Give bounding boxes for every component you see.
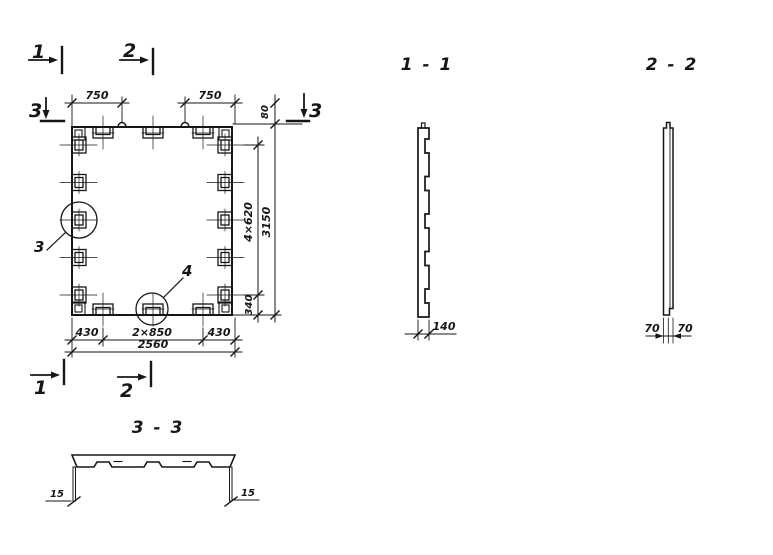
- dim-side-spacing: 4×620: [242, 202, 255, 243]
- dim-thickness: 140: [433, 320, 456, 333]
- arrow-right-icon: [138, 374, 147, 381]
- section-profile: [418, 128, 429, 317]
- dim-left: 70: [644, 322, 660, 335]
- section-marker-label: 2: [120, 380, 133, 402]
- section-marker-1-bottom: 1: [31, 360, 64, 399]
- detail-callout-3: 3: [34, 202, 97, 256]
- section-marker-1-top: 1: [29, 41, 62, 73]
- dim-rib: 15: [241, 488, 255, 499]
- section-marker-label: 1: [34, 377, 47, 399]
- dim-top-right: 750: [199, 89, 222, 102]
- extension-lines: [418, 320, 429, 340]
- arrow-right-icon: [49, 57, 58, 64]
- detail-label: 3: [34, 238, 44, 256]
- section-marker-3-right: 3: [287, 94, 322, 122]
- edge-rib: [73, 467, 76, 501]
- leader-line: [47, 233, 65, 250]
- section-profile: [664, 123, 674, 316]
- section-marker-2-bottom: 2: [118, 362, 151, 402]
- dim-right: 70: [677, 322, 693, 335]
- plan-view: 1 2 3 3 1 2: [29, 40, 322, 402]
- dim-height-total: 3150: [260, 206, 273, 237]
- section-marker-label: 3: [309, 100, 322, 122]
- section-profile: [72, 455, 235, 467]
- dim-width-total: 2560: [138, 338, 169, 351]
- section-title: 1 - 1: [401, 55, 454, 75]
- section-3-3: 3 - 3 15 15: [46, 418, 259, 506]
- detail-label: 4: [181, 262, 192, 280]
- edge-keyways: [60, 116, 244, 326]
- corner-keyways: [72, 127, 232, 315]
- section-2-2: 2 - 2 70 70: [644, 55, 698, 343]
- arrow-down-icon: [301, 109, 308, 118]
- dim-bottom-left: 430: [75, 326, 99, 339]
- dim-top-left: 750: [86, 89, 109, 102]
- rib-dim-left: 15: [46, 489, 80, 506]
- section-title: 2 - 2: [646, 55, 699, 75]
- leader-line: [164, 278, 183, 297]
- panel-outline: [72, 127, 232, 315]
- dim-edge-top: 80: [260, 105, 271, 119]
- section-marker-2-top: 2: [120, 40, 153, 74]
- drawing-sheet: 1 2 3 3 1 2: [0, 0, 773, 555]
- extension-lines: [664, 318, 674, 343]
- arrow-right-icon: [51, 372, 60, 379]
- section-marker-3-left: 3: [29, 98, 64, 122]
- arrow-down-icon: [43, 110, 50, 119]
- dim-edge-bottom: 340: [244, 295, 255, 316]
- section-marker-label: 2: [123, 40, 136, 62]
- section-1-1: 1 - 1 140: [401, 55, 456, 340]
- rib-dim-right: 15: [225, 488, 259, 506]
- section-marker-label: 3: [29, 100, 42, 122]
- dim-rib: 15: [50, 489, 64, 500]
- section-title: 3 - 3: [132, 418, 185, 438]
- edge-rib: [230, 467, 233, 501]
- arrow-right-icon: [140, 57, 149, 64]
- technical-drawing: 1 2 3 3 1 2: [0, 0, 773, 555]
- dim-bottom-right: 430: [207, 326, 231, 339]
